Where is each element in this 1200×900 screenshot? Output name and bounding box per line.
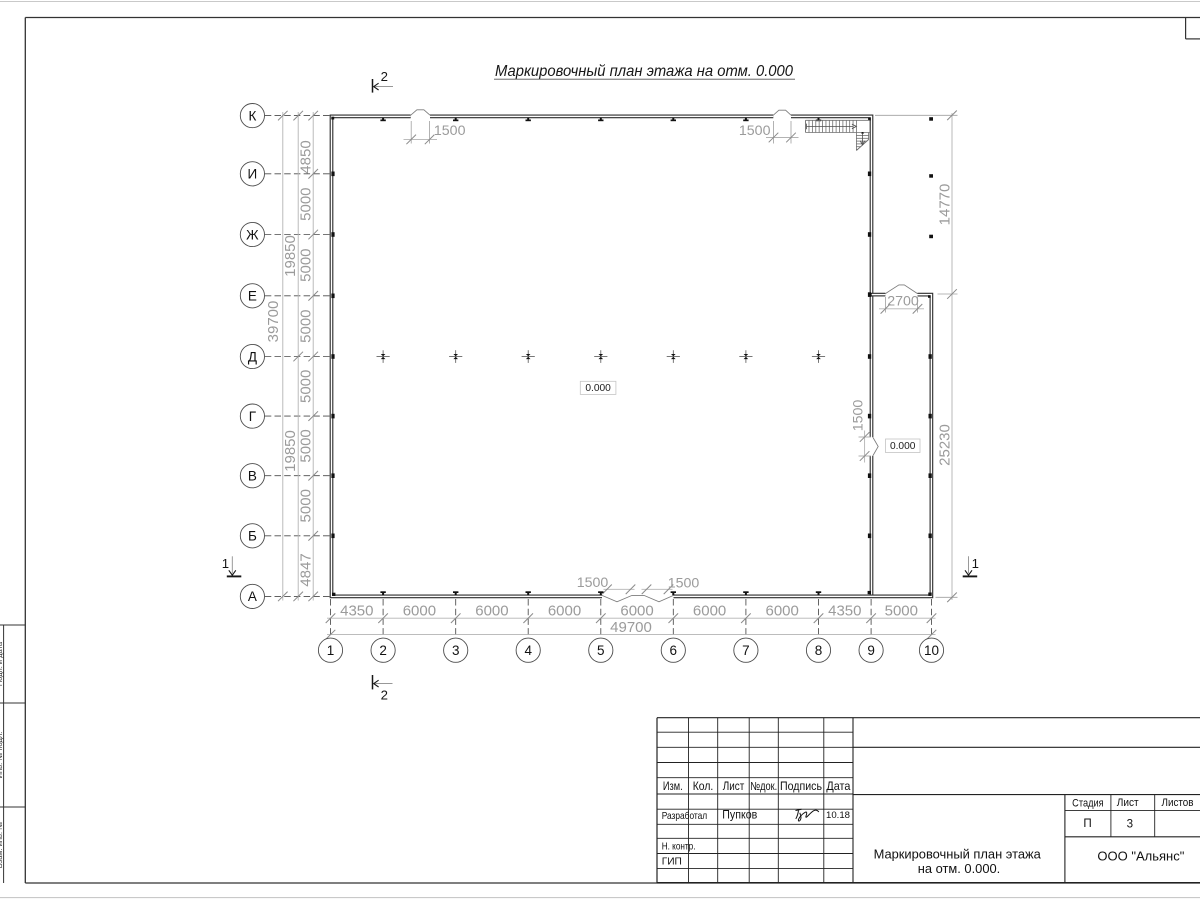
svg-text:на отм. 0.000.: на отм. 0.000. xyxy=(918,861,1001,876)
svg-text:Лист: Лист xyxy=(1117,797,1139,809)
svg-text:В: В xyxy=(248,469,257,484)
svg-text:19850: 19850 xyxy=(282,430,299,472)
svg-text:4350: 4350 xyxy=(340,603,373,620)
svg-text:Ж: Ж xyxy=(246,227,259,242)
svg-text:Лист: Лист xyxy=(723,780,745,793)
svg-text:3: 3 xyxy=(452,643,460,658)
svg-text:4: 4 xyxy=(524,643,532,658)
svg-text:5000: 5000 xyxy=(885,603,918,620)
svg-text:1500: 1500 xyxy=(851,400,867,432)
svg-text:39700: 39700 xyxy=(265,301,282,343)
svg-text:5000: 5000 xyxy=(298,187,315,220)
svg-text:К: К xyxy=(248,108,256,123)
svg-text:5000: 5000 xyxy=(298,370,315,403)
svg-text:5000: 5000 xyxy=(298,489,315,522)
svg-text:2: 2 xyxy=(381,687,388,702)
svg-text:Б: Б xyxy=(248,529,257,544)
svg-text:6000: 6000 xyxy=(475,603,508,620)
svg-text:Подп. и дата: Подп. и дата xyxy=(0,641,4,686)
svg-text:2700: 2700 xyxy=(887,294,919,310)
svg-text:4350: 4350 xyxy=(828,603,861,620)
svg-text:Изм.: Изм. xyxy=(663,780,683,793)
svg-text:ООО "Альянс": ООО "Альянс" xyxy=(1097,849,1184,864)
svg-text:10.18: 10.18 xyxy=(826,810,850,821)
svg-text:Разработал: Разработал xyxy=(662,810,708,822)
svg-text:Маркировочный план этажа: Маркировочный план этажа xyxy=(874,846,1042,861)
svg-text:10: 10 xyxy=(924,643,939,658)
svg-text:6000: 6000 xyxy=(766,603,799,620)
svg-text:9: 9 xyxy=(867,643,875,658)
svg-text:8: 8 xyxy=(815,643,823,658)
svg-text:И: И xyxy=(248,167,258,182)
svg-text:6000: 6000 xyxy=(548,603,581,620)
svg-text:Н. контр.: Н. контр. xyxy=(662,842,696,853)
svg-text:19850: 19850 xyxy=(282,235,299,277)
svg-text:№док.: №док. xyxy=(750,780,777,793)
svg-text:1500: 1500 xyxy=(577,575,609,591)
svg-text:6000: 6000 xyxy=(693,603,726,620)
svg-text:1: 1 xyxy=(222,556,229,571)
svg-text:4850: 4850 xyxy=(298,140,315,173)
svg-text:Пупков: Пупков xyxy=(722,809,757,822)
svg-text:4847: 4847 xyxy=(298,553,315,586)
svg-text:Е: Е xyxy=(248,289,257,304)
svg-text:7: 7 xyxy=(742,643,750,658)
svg-text:1500: 1500 xyxy=(739,123,771,139)
svg-text:Стадия: Стадия xyxy=(1072,797,1104,809)
svg-text:49700: 49700 xyxy=(610,619,652,636)
svg-text:3: 3 xyxy=(1127,817,1133,830)
svg-text:1: 1 xyxy=(327,643,335,658)
svg-text:Д: Д xyxy=(248,349,257,364)
svg-text:6000: 6000 xyxy=(620,603,653,620)
svg-text:П: П xyxy=(1083,817,1091,830)
svg-text:5000: 5000 xyxy=(298,429,315,462)
svg-text:1500: 1500 xyxy=(668,576,700,592)
svg-text:6000: 6000 xyxy=(403,603,436,620)
svg-text:14770: 14770 xyxy=(937,184,954,226)
svg-text:Подпись: Подпись xyxy=(780,780,822,793)
svg-text:ГИП: ГИП xyxy=(662,856,682,867)
svg-text:25230: 25230 xyxy=(937,424,954,466)
svg-text:Г: Г xyxy=(249,409,257,424)
svg-text:5: 5 xyxy=(597,643,605,658)
svg-text:Инв. № подл.: Инв. № подл. xyxy=(0,732,4,779)
svg-text:0.000: 0.000 xyxy=(585,383,611,394)
svg-text:Кол.: Кол. xyxy=(693,780,714,793)
svg-text:2: 2 xyxy=(381,69,388,84)
svg-text:1: 1 xyxy=(972,556,979,571)
svg-text:1500: 1500 xyxy=(434,123,466,139)
svg-text:2: 2 xyxy=(379,643,387,658)
svg-text:Дата: Дата xyxy=(826,780,851,793)
svg-text:Взам. инв. №: Взам. инв. № xyxy=(0,822,4,868)
svg-text:А: А xyxy=(248,589,257,604)
svg-text:5000: 5000 xyxy=(298,248,315,281)
svg-text:6: 6 xyxy=(670,643,678,658)
svg-text:0.000: 0.000 xyxy=(890,441,916,452)
svg-text:5000: 5000 xyxy=(298,309,315,342)
svg-text:Маркировочный план этажа на от: Маркировочный план этажа на отм. 0.000 xyxy=(495,63,793,80)
svg-text:Листов: Листов xyxy=(1162,797,1194,809)
